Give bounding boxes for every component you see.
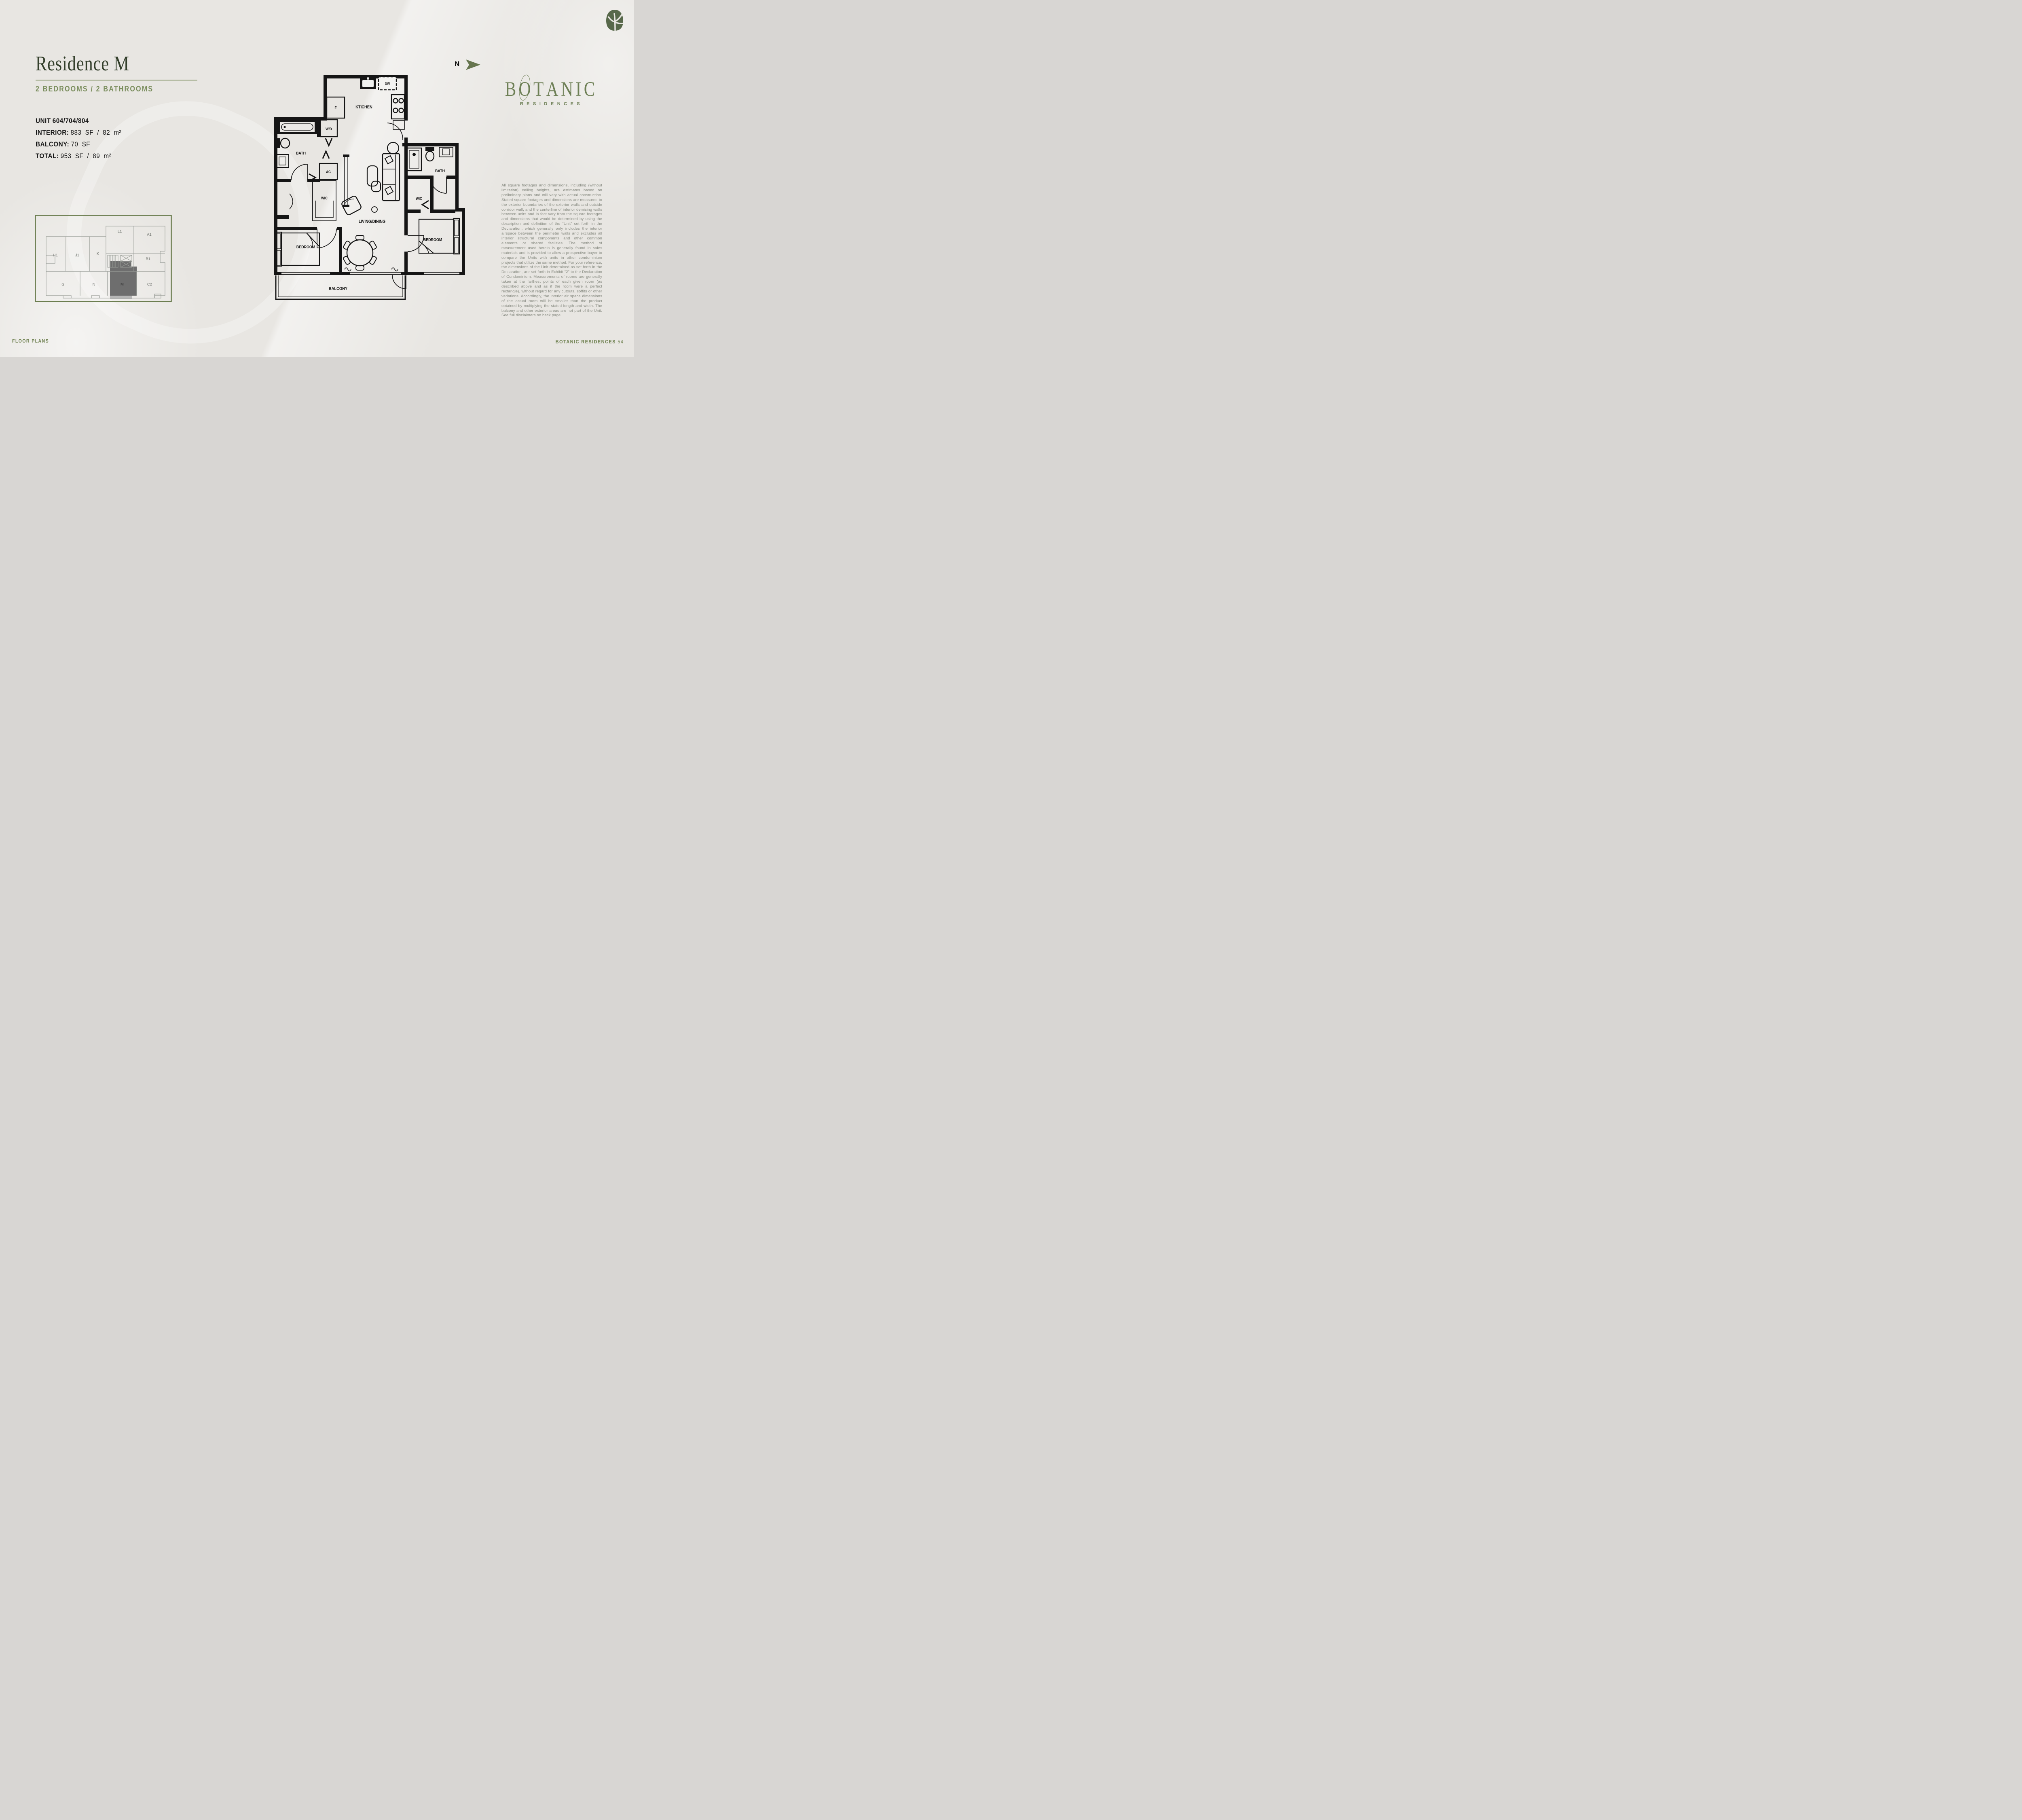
label-bath-left: BATH — [296, 151, 306, 156]
keyplan-unit-j1: J1 — [75, 253, 79, 258]
keyplan-unit-m: M — [121, 282, 124, 287]
living-furniture — [341, 142, 400, 270]
unit-label: UNIT — [36, 117, 51, 125]
label-f: F — [334, 106, 336, 110]
wardrobe-lines — [345, 157, 348, 205]
leaf-icon — [605, 9, 624, 32]
label-wd: W/D — [326, 127, 332, 131]
side-table-icon — [387, 142, 399, 154]
label-wic-right: WIC — [416, 196, 422, 201]
dining-chairs — [343, 235, 377, 270]
brand-logo-subtitle: RESIDENCES — [496, 102, 604, 106]
label-bedroom-right: BEDROOM — [423, 237, 442, 242]
unit-number-row: UNIT 604/704/804 — [36, 115, 121, 127]
balcony-value: 70 SF — [71, 140, 90, 148]
footer-section-title: FLOOR PLANS — [12, 339, 49, 344]
footer-brand-page: BOTANIC RESIDENCES 54 — [555, 339, 624, 345]
label-kitchen: KTICHEN — [355, 105, 372, 110]
total-label: TOTAL: — [36, 152, 59, 160]
logo-letter: A — [546, 78, 558, 100]
chevron-wd — [326, 138, 332, 146]
keyplan-unit-m-balcony — [110, 296, 132, 299]
footer-brand: BOTANIC RESIDENCES — [555, 339, 615, 345]
keyplan-unit-g: G — [61, 282, 64, 287]
logo-letter: N — [561, 78, 573, 100]
keyplan-unit-b1: B1 — [146, 257, 150, 261]
brand-logo: BOTANIC RESIDENCES — [496, 78, 604, 106]
toilet-left-icon — [277, 138, 280, 148]
unit-value: 604/704/804 — [53, 117, 89, 125]
page-title: Residence M — [36, 52, 129, 76]
label-balcony: BALCONY — [329, 286, 347, 291]
interior-value: 883 SF / 82 m² — [71, 129, 121, 136]
keyplan-border — [36, 216, 171, 302]
title-divider — [36, 80, 197, 80]
logo-letter: C — [584, 78, 595, 100]
north-indicator: N — [455, 59, 487, 70]
balcony-label: BALCONY: — [36, 140, 69, 148]
label-ac: AC — [326, 169, 331, 174]
north-label: N — [455, 60, 459, 68]
keyplan-unit-k: K — [97, 252, 99, 256]
brochure-page: Residence M 2 BEDROOMS / 2 BATHROOMS UNI… — [0, 0, 634, 357]
logo-letter-o: O — [519, 78, 531, 100]
floorplan: KTICHEN DW F W/D BATH AC WIC LIVING/DINI… — [265, 71, 484, 311]
interior-label: INTERIOR: — [36, 129, 69, 136]
dining-table-icon — [347, 240, 373, 266]
floorplan-svg: KTICHEN DW F W/D BATH AC WIC LIVING/DINI… — [265, 71, 484, 311]
label-wic-left: WIC — [321, 196, 328, 200]
closet-door-bulge — [290, 194, 293, 209]
disclaimer-text: All square footages and dimensions, incl… — [501, 183, 602, 318]
keyplan-unit-c2: C2 — [147, 282, 152, 287]
bed-right-icon — [419, 218, 459, 254]
label-living-dining: LIVING/DINING — [359, 219, 385, 224]
total-value: 953 SF / 89 m² — [61, 152, 111, 160]
chevron-wic-right — [422, 201, 429, 209]
keyplan-unit-a1: A1 — [147, 233, 152, 237]
logo-letter: B — [505, 78, 516, 100]
keyplan-labels: H1 J1 K L1 A1 B1 G N M C2 — [53, 229, 152, 287]
north-arrow-icon — [465, 59, 481, 70]
balcony-row: BALCONY: 70 SF — [36, 138, 121, 150]
label-dw: DW — [385, 81, 390, 86]
balcony-door — [392, 275, 406, 289]
keyplan-svg: H1 J1 K L1 A1 B1 G N M C2 — [35, 215, 172, 302]
footer-page-number: 54 — [618, 339, 624, 345]
keyplan-unit-h1: H1 — [53, 253, 58, 258]
toilet-right-icon — [425, 147, 434, 151]
logo-letter: T — [533, 78, 544, 100]
unit-subtitle: 2 BEDROOMS / 2 BATHROOMS — [36, 85, 153, 94]
label-bath-right: BATH — [435, 169, 445, 174]
sofa-icon — [383, 154, 400, 201]
bedroom-left-door — [317, 229, 336, 248]
bath-left-door — [291, 164, 307, 180]
keyplan-unit-n: N — [93, 282, 95, 287]
interior-row: INTERIOR: 883 SF / 82 m² — [36, 127, 121, 138]
keyplan-unit-l1: L1 — [118, 229, 122, 234]
unit-info: UNIT 604/704/804 INTERIOR: 883 SF / 82 m… — [36, 115, 121, 162]
vanity-left-icon — [277, 154, 289, 167]
kitchen-fixtures — [327, 77, 404, 129]
brand-logo-word: BOTANIC — [500, 78, 600, 100]
chevron-ac — [323, 151, 329, 159]
kitchen-entry-arc — [387, 123, 403, 140]
keyplan: H1 J1 K L1 A1 B1 G N M C2 — [35, 215, 172, 302]
total-row: TOTAL: 953 SF / 89 m² — [36, 150, 121, 162]
wic-left-room — [313, 180, 336, 221]
windows — [281, 268, 459, 275]
logo-letter: I — [575, 78, 581, 100]
label-bedroom-left: BEDROOM — [296, 245, 315, 250]
